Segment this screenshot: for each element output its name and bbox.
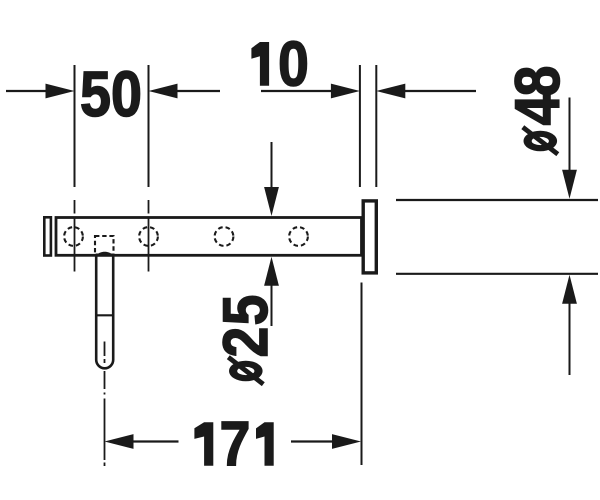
svg-text:8: 8 [501,66,572,97]
svg-text:2: 2 [209,327,280,358]
svg-text:0: 0 [278,28,309,99]
svg-text:7: 7 [220,408,251,479]
svg-text:4: 4 [501,95,572,126]
svg-text:50: 50 [80,58,142,129]
svg-text:5: 5 [209,295,280,326]
